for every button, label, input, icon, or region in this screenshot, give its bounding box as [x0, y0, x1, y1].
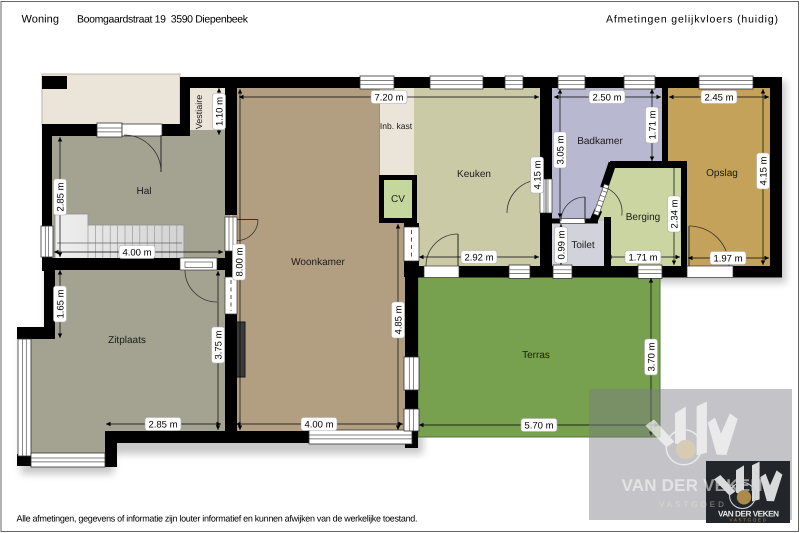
svg-text:Woning: Woning: [22, 14, 60, 26]
svg-text:Terras: Terras: [522, 350, 550, 361]
svg-text:4.00 m: 4.00 m: [122, 247, 151, 258]
svg-text:Badkamer: Badkamer: [577, 136, 623, 147]
svg-text:3.70 m: 3.70 m: [646, 342, 657, 371]
svg-text:2.50 m: 2.50 m: [592, 92, 621, 103]
svg-text:2.85 m: 2.85 m: [148, 419, 177, 430]
svg-text:Opslag: Opslag: [706, 168, 738, 179]
svg-text:Berging: Berging: [626, 212, 660, 223]
svg-text:2.34 m: 2.34 m: [669, 199, 680, 228]
svg-text:2.85 m: 2.85 m: [55, 182, 66, 211]
svg-text:1.65 m: 1.65 m: [55, 289, 66, 318]
svg-text:Inb. kast: Inb. kast: [380, 121, 413, 131]
svg-text:4.15 m: 4.15 m: [532, 160, 543, 189]
svg-text:Toilet: Toilet: [571, 240, 595, 251]
svg-text:5.70 m: 5.70 m: [524, 420, 553, 431]
svg-text:1.71 m: 1.71 m: [647, 110, 658, 139]
svg-text:Zitplaats: Zitplaats: [108, 335, 146, 346]
svg-text:Vestiaire: Vestiaire: [194, 95, 204, 130]
svg-text:1.71 m: 1.71 m: [628, 252, 657, 263]
svg-text:8.00 m: 8.00 m: [234, 247, 245, 276]
svg-text:2.92 m: 2.92 m: [464, 252, 493, 263]
svg-text:CV: CV: [391, 194, 405, 205]
svg-text:Afmetingen gelijkvloers (huidi: Afmetingen gelijkvloers (huidig): [606, 14, 778, 26]
svg-text:Woonkamer: Woonkamer: [291, 257, 345, 268]
svg-text:1.10 m: 1.10 m: [214, 97, 225, 126]
svg-text:3.05 m: 3.05 m: [555, 135, 566, 164]
svg-text:Keuken: Keuken: [457, 169, 491, 180]
svg-text:1.97 m: 1.97 m: [713, 253, 742, 264]
svg-text:Alle afmetingen, gegevens of i: Alle afmetingen, gegevens of informatie …: [17, 514, 418, 524]
svg-text:Hal: Hal: [136, 186, 151, 197]
svg-text:2.45 m: 2.45 m: [704, 92, 733, 103]
svg-text:Boomgaardstraat 19 3590 Diepe: Boomgaardstraat 19 3590 Diepenbeek: [77, 14, 249, 26]
svg-text:4.00 m: 4.00 m: [304, 419, 333, 430]
svg-text:VASTGOED: VASTGOED: [659, 500, 727, 509]
svg-text:7.20 m: 7.20 m: [374, 92, 403, 103]
svg-text:3.75 m: 3.75 m: [213, 330, 224, 359]
svg-text:4.85 m: 4.85 m: [393, 305, 404, 334]
svg-text:4.15 m: 4.15 m: [758, 156, 769, 185]
svg-text:VASTGOED: VASTGOED: [730, 518, 768, 523]
svg-text:0.99 m: 0.99 m: [556, 230, 567, 259]
